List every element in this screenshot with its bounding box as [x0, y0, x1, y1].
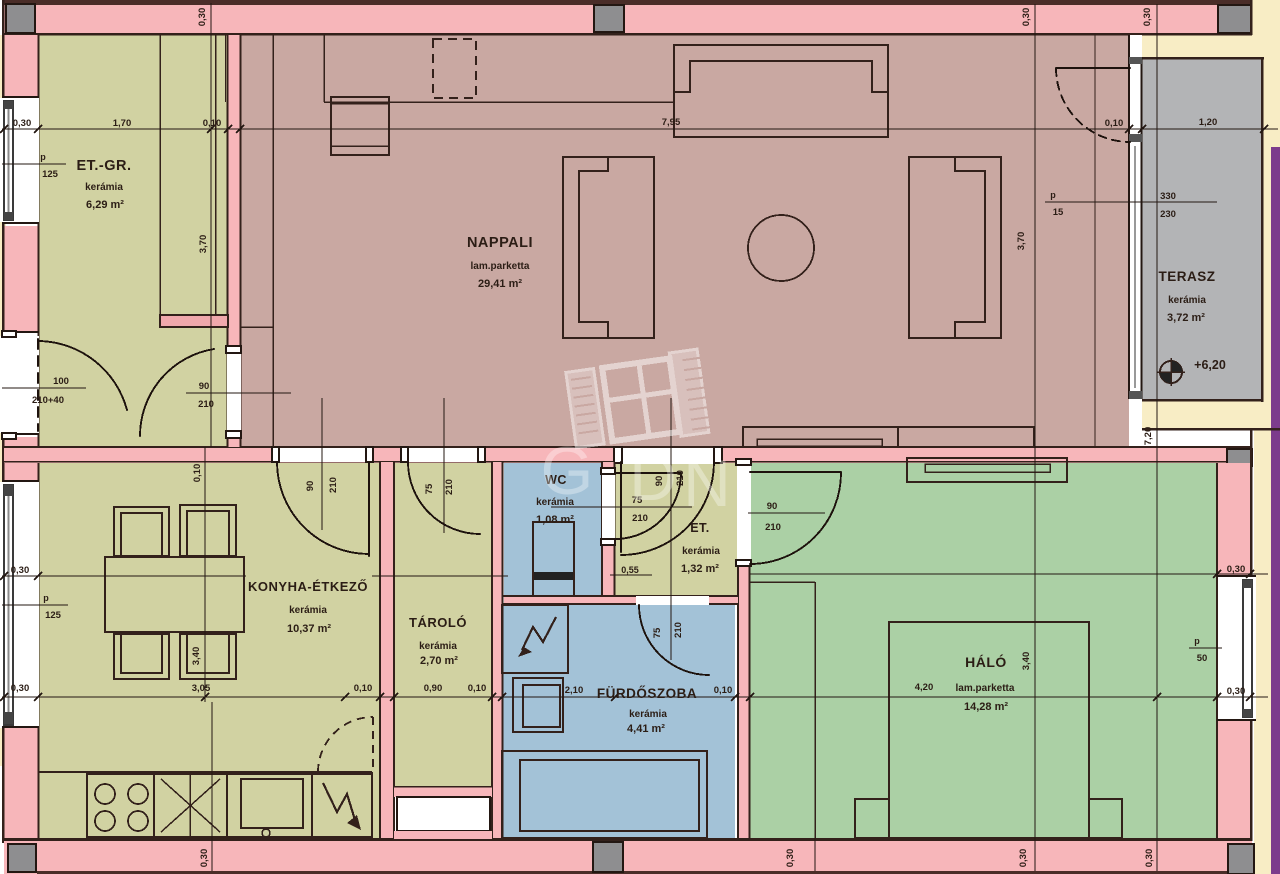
svg-text:75: 75	[424, 483, 435, 494]
svg-text:3,72 m²: 3,72 m²	[1167, 312, 1205, 324]
svg-text:210: 210	[328, 477, 339, 493]
svg-text:6,29 m²: 6,29 m²	[86, 199, 124, 211]
svg-text:KONYHA-ÉTKEZŐ: KONYHA-ÉTKEZŐ	[248, 579, 368, 594]
svg-text:0,30: 0,30	[785, 849, 796, 868]
svg-text:210: 210	[673, 622, 684, 638]
svg-text:0,30: 0,30	[1021, 8, 1032, 27]
svg-text:210: 210	[444, 479, 455, 495]
svg-text:230: 230	[1160, 209, 1176, 220]
svg-text:0,30: 0,30	[197, 8, 208, 27]
svg-text:D: D	[629, 440, 677, 514]
svg-text:210: 210	[632, 513, 648, 524]
svg-text:210: 210	[198, 399, 214, 410]
svg-text:210+40: 210+40	[32, 395, 64, 406]
svg-text:0,30: 0,30	[1227, 686, 1246, 697]
svg-text:0,30: 0,30	[13, 118, 32, 129]
svg-text:lam.parketta: lam.parketta	[956, 683, 1015, 694]
svg-text:4,20: 4,20	[915, 682, 934, 693]
svg-text:0,10: 0,10	[354, 683, 373, 694]
svg-text:50: 50	[1197, 653, 1208, 664]
svg-text:90: 90	[199, 381, 210, 392]
svg-text:ET.: ET.	[690, 521, 710, 535]
svg-text:0,90: 0,90	[424, 683, 443, 694]
svg-text:kerámia: kerámia	[85, 182, 123, 193]
svg-text:0,10: 0,10	[203, 118, 222, 129]
svg-text:0,30: 0,30	[11, 565, 30, 576]
svg-text:75: 75	[652, 627, 663, 638]
svg-text:0,30: 0,30	[1227, 564, 1246, 575]
svg-text:p: p	[40, 152, 46, 162]
svg-text:0,10: 0,10	[192, 464, 203, 483]
svg-text:90: 90	[767, 501, 778, 512]
svg-text:1,20: 1,20	[1199, 117, 1218, 128]
svg-text:3,40: 3,40	[191, 647, 202, 666]
svg-text:0,30: 0,30	[199, 849, 210, 868]
svg-text:125: 125	[42, 169, 59, 180]
svg-text:FÜRDŐSZOBA: FÜRDŐSZOBA	[597, 686, 697, 701]
svg-text:1,70: 1,70	[113, 118, 132, 129]
svg-text:0,10: 0,10	[468, 683, 487, 694]
svg-text:0,30: 0,30	[11, 683, 30, 694]
svg-text:0,10: 0,10	[1105, 118, 1124, 129]
svg-text:1,32 m²: 1,32 m²	[681, 563, 719, 575]
svg-text:3,70: 3,70	[198, 235, 209, 254]
svg-text:210: 210	[765, 522, 781, 533]
svg-text:7,95: 7,95	[662, 117, 681, 128]
svg-text:2,10: 2,10	[565, 685, 584, 696]
svg-text:kerámia: kerámia	[419, 641, 457, 652]
svg-text:0,30: 0,30	[1144, 849, 1155, 868]
svg-text:1,08 m²: 1,08 m²	[536, 514, 574, 526]
svg-text:330: 330	[1160, 191, 1176, 202]
svg-text:ET.-GR.: ET.-GR.	[76, 158, 131, 174]
svg-text:N: N	[683, 446, 731, 520]
svg-text:HÁLÓ: HÁLÓ	[965, 653, 1007, 670]
svg-text:4,41 m²: 4,41 m²	[627, 723, 665, 735]
svg-text:NAPPALI: NAPPALI	[467, 235, 533, 251]
svg-text:0,30: 0,30	[1018, 849, 1029, 868]
svg-text:3,70: 3,70	[1016, 232, 1027, 251]
svg-text:29,41 m²: 29,41 m²	[478, 278, 522, 290]
svg-text:TÁROLÓ: TÁROLÓ	[409, 615, 467, 630]
svg-text:125: 125	[45, 610, 62, 621]
svg-text:lam.parketta: lam.parketta	[471, 261, 530, 272]
svg-text:15: 15	[1053, 207, 1064, 218]
svg-text:7,20: 7,20	[1143, 427, 1154, 446]
svg-text:100: 100	[53, 376, 69, 387]
svg-text:10,37 m²: 10,37 m²	[287, 623, 331, 635]
svg-text:0,10: 0,10	[714, 685, 733, 696]
svg-text:p: p	[1050, 190, 1056, 200]
svg-text:14,28 m²: 14,28 m²	[964, 701, 1008, 713]
svg-text:G: G	[541, 433, 594, 509]
svg-text:0,30: 0,30	[1142, 8, 1153, 27]
svg-text:kerámia: kerámia	[289, 605, 327, 616]
svg-text:TERASZ: TERASZ	[1159, 269, 1216, 284]
svg-text:kerámia: kerámia	[629, 709, 667, 720]
svg-text:3,40: 3,40	[1021, 652, 1032, 671]
svg-text:0,55: 0,55	[621, 565, 639, 575]
svg-text:2,70 m²: 2,70 m²	[420, 655, 458, 667]
svg-text:p: p	[1194, 636, 1200, 646]
svg-text:kerámia: kerámia	[682, 546, 720, 557]
svg-text:+6,20: +6,20	[1194, 358, 1226, 372]
svg-text:3,05: 3,05	[192, 683, 211, 694]
svg-text:90: 90	[305, 481, 316, 492]
svg-text:p: p	[43, 593, 49, 603]
svg-text:kerámia: kerámia	[1168, 295, 1206, 306]
